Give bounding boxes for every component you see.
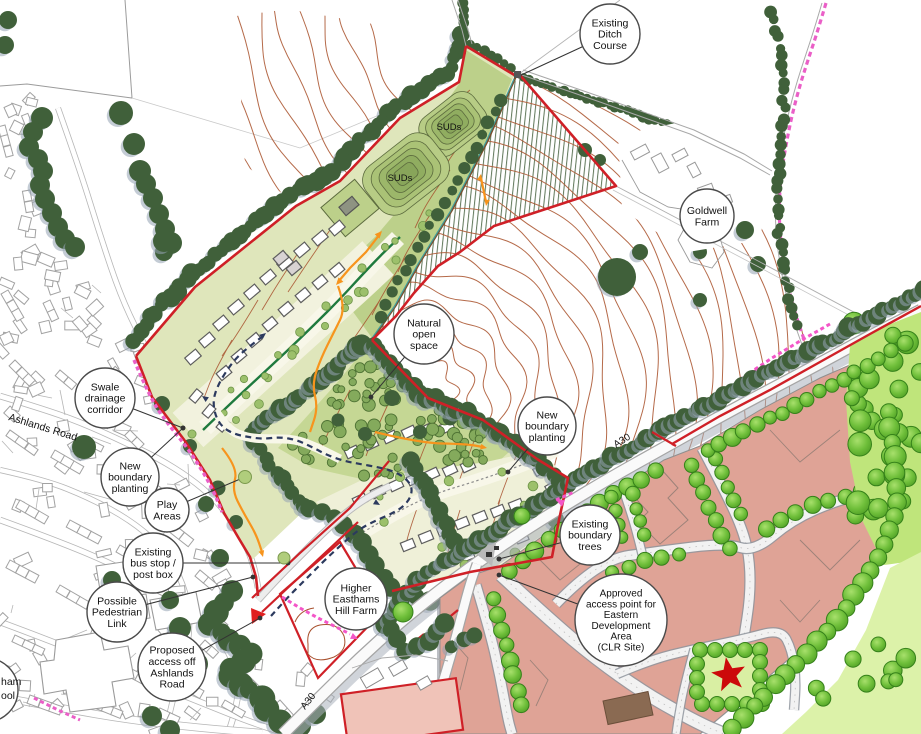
- svg-text:Development: Development: [592, 621, 651, 632]
- svg-text:Link: Link: [107, 618, 127, 630]
- svg-text:Ashlands: Ashlands: [150, 667, 193, 679]
- svg-text:Swale: Swale: [91, 381, 120, 393]
- svg-text:space: space: [410, 340, 438, 352]
- svg-text:Easthams: Easthams: [333, 594, 380, 606]
- svg-text:Course: Course: [593, 40, 627, 52]
- svg-text:(CLR Site): (CLR Site): [598, 643, 645, 654]
- svg-text:post box: post box: [133, 569, 173, 581]
- svg-text:trees: trees: [578, 541, 601, 553]
- svg-text:Natural: Natural: [407, 317, 441, 329]
- svg-text:Proposed: Proposed: [150, 645, 195, 657]
- svg-text:boundary: boundary: [568, 530, 613, 542]
- svg-text:ham: ham: [1, 676, 22, 688]
- svg-text:Hill Farm: Hill Farm: [335, 605, 377, 617]
- svg-text:SUDs: SUDs: [388, 173, 413, 184]
- svg-text:Approved: Approved: [600, 589, 643, 600]
- svg-text:boundary: boundary: [108, 472, 153, 484]
- svg-text:Higher: Higher: [341, 582, 372, 594]
- svg-text:Play: Play: [157, 499, 178, 511]
- svg-text:Existing: Existing: [592, 17, 629, 29]
- svg-text:planting: planting: [112, 483, 149, 495]
- svg-text:Existing: Existing: [135, 546, 172, 558]
- svg-text:ool: ool: [1, 690, 15, 702]
- svg-text:Areas: Areas: [153, 510, 180, 522]
- svg-text:Road: Road: [159, 679, 184, 691]
- svg-text:Pedestrian: Pedestrian: [92, 607, 142, 619]
- svg-text:Eastern: Eastern: [604, 610, 638, 621]
- svg-text:open: open: [412, 329, 436, 341]
- svg-text:Ditch: Ditch: [598, 29, 622, 41]
- svg-text:drainage: drainage: [85, 393, 126, 405]
- svg-text:boundary: boundary: [525, 421, 570, 433]
- svg-text:Area: Area: [610, 632, 632, 643]
- svg-text:Farm: Farm: [695, 216, 720, 228]
- svg-text:access off: access off: [148, 656, 195, 668]
- svg-text:bus stop /: bus stop /: [130, 558, 176, 570]
- svg-text:planting: planting: [529, 432, 566, 444]
- svg-text:corridor: corridor: [87, 404, 123, 416]
- svg-text:SUDs: SUDs: [437, 122, 462, 133]
- svg-text:access point for: access point for: [586, 599, 657, 610]
- svg-text:Goldwell: Goldwell: [687, 205, 727, 217]
- svg-text:Possible: Possible: [97, 595, 137, 607]
- svg-text:Existing: Existing: [572, 518, 609, 530]
- svg-text:New: New: [119, 460, 140, 472]
- svg-text:New: New: [536, 409, 557, 421]
